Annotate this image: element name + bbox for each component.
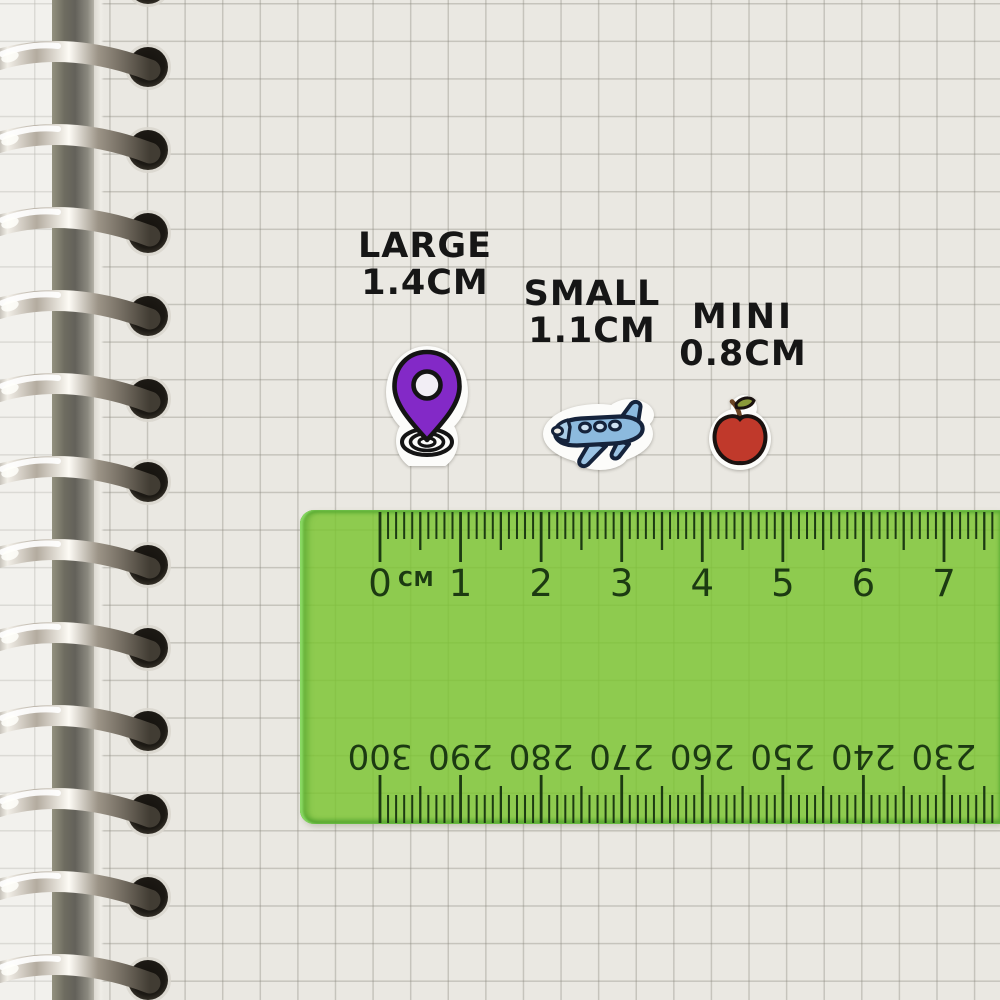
label-small-name: SMALL: [517, 276, 667, 313]
svg-text:7: 7: [932, 562, 956, 605]
svg-text:6: 6: [852, 562, 876, 605]
ruler-markings: 01234567CM300290280270260250240230: [300, 510, 1000, 824]
spiral-binding-icon: [0, 0, 240, 1000]
svg-text:270: 270: [589, 736, 654, 776]
svg-text:300: 300: [348, 736, 413, 776]
airplane-sticker-icon: [540, 397, 662, 471]
apple-sticker-icon: [702, 393, 778, 471]
label-mini-size: 0.8CM: [668, 336, 818, 373]
label-small-size: 1.1CM: [517, 313, 667, 350]
svg-text:260: 260: [670, 736, 735, 776]
label-large-size: 1.4CM: [350, 265, 500, 302]
svg-text:0: 0: [368, 562, 392, 605]
svg-text:240: 240: [831, 736, 896, 776]
svg-text:3: 3: [610, 562, 634, 605]
svg-text:290: 290: [428, 736, 493, 776]
svg-text:4: 4: [691, 562, 715, 605]
label-large-name: LARGE: [350, 228, 500, 265]
location-pin-sticker-icon: [381, 344, 473, 466]
label-small: SMALL 1.1CM: [517, 276, 667, 350]
label-mini-name: MINI: [668, 299, 818, 336]
photo-scene: LARGE 1.4CM SMALL 1.1CM MINI 0.8CM: [0, 0, 1000, 1000]
svg-text:280: 280: [509, 736, 574, 776]
label-mini: MINI 0.8CM: [668, 299, 818, 373]
label-large: LARGE 1.4CM: [350, 228, 500, 302]
svg-text:250: 250: [750, 736, 815, 776]
svg-text:5: 5: [771, 562, 795, 605]
svg-text:CM: CM: [398, 567, 435, 591]
green-ruler: 01234567CM300290280270260250240230: [300, 510, 1000, 824]
svg-text:1: 1: [449, 562, 473, 605]
svg-text:2: 2: [529, 562, 553, 605]
svg-text:230: 230: [912, 736, 977, 776]
